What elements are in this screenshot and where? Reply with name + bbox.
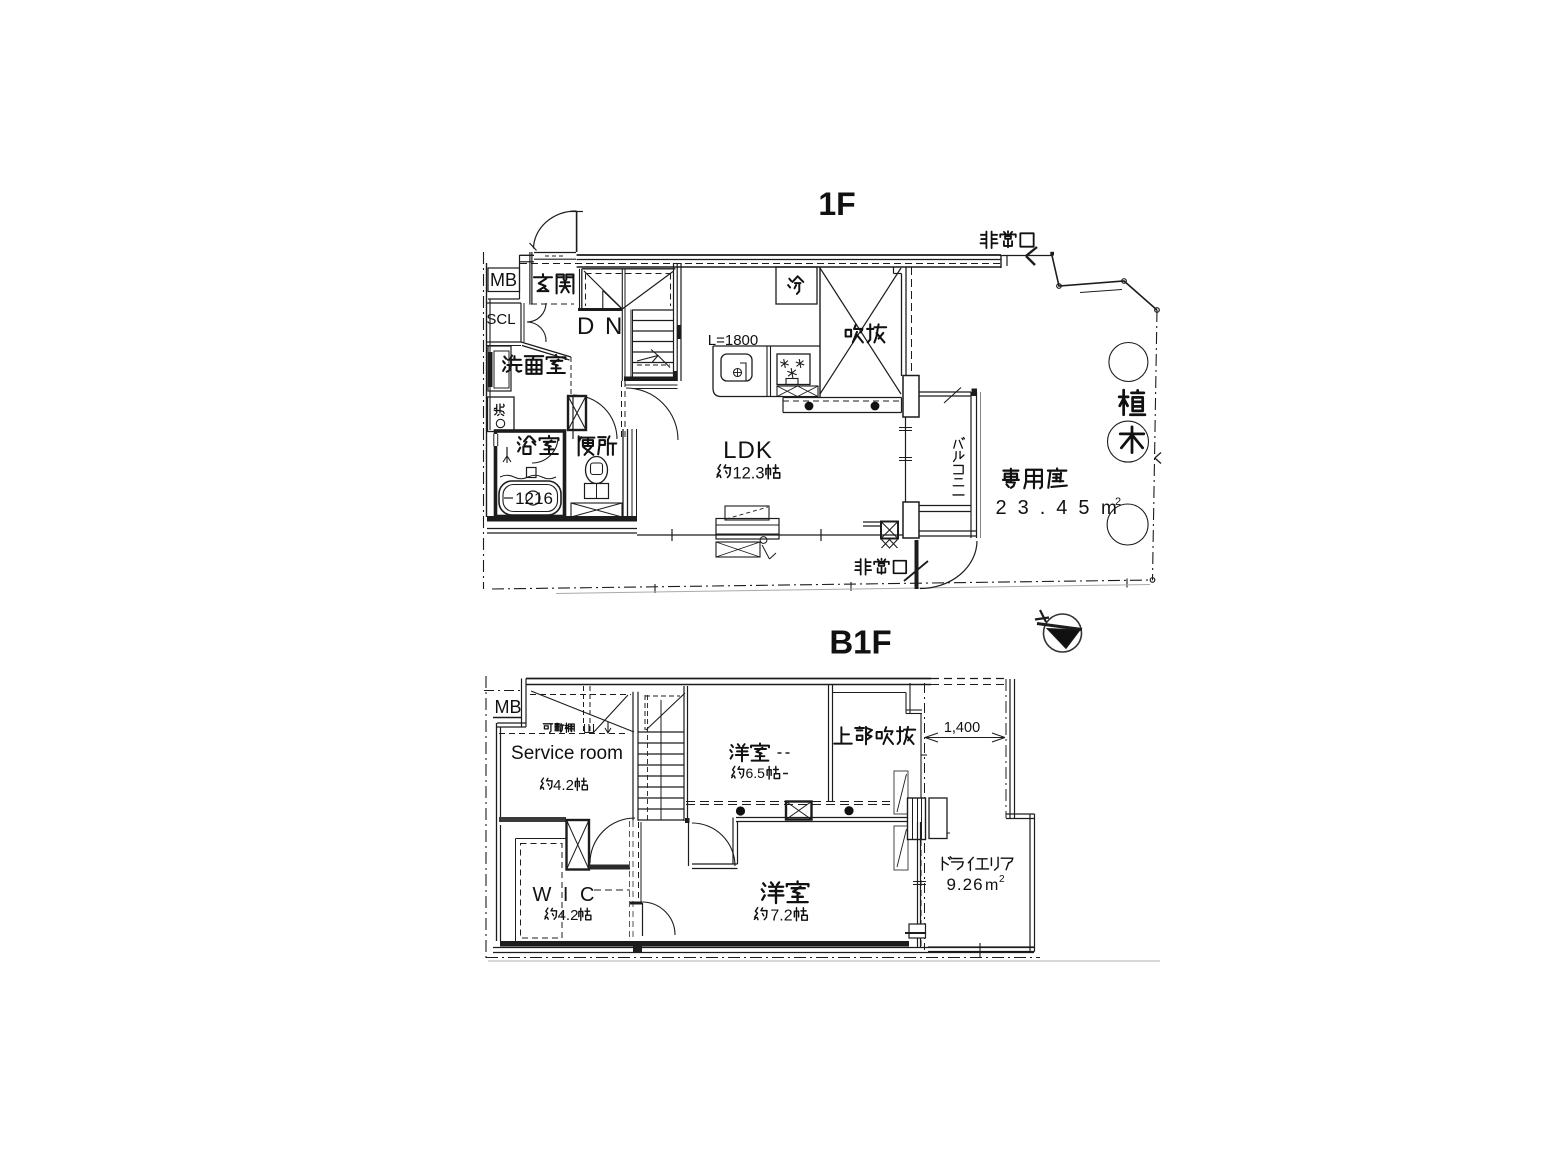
svg-text:1216: 1216 (515, 489, 553, 508)
svg-text:12.3: 12.3 (732, 465, 764, 483)
svg-text:B1F: B1F (829, 624, 891, 661)
svg-text:6.5: 6.5 (745, 765, 765, 781)
svg-text:m: m (985, 877, 998, 894)
svg-text:W I C: W I C (533, 884, 598, 906)
svg-text:Service room: Service room (511, 743, 623, 764)
svg-text:2: 2 (999, 874, 1005, 885)
svg-text:4.2: 4.2 (558, 907, 579, 924)
svg-text:9.26: 9.26 (946, 875, 983, 894)
svg-text:MB: MB (490, 270, 517, 290)
svg-text:7.2: 7.2 (770, 908, 792, 925)
svg-text:23.45: 23.45 (995, 497, 1100, 519)
svg-text:LDK: LDK (723, 437, 773, 464)
svg-text:4.2: 4.2 (553, 777, 574, 794)
svg-text:D N: D N (577, 313, 624, 340)
svg-text:MB: MB (495, 697, 522, 717)
svg-text:1F: 1F (818, 186, 855, 222)
svg-text:1,400: 1,400 (944, 720, 980, 736)
svg-text:SCL: SCL (486, 311, 515, 328)
